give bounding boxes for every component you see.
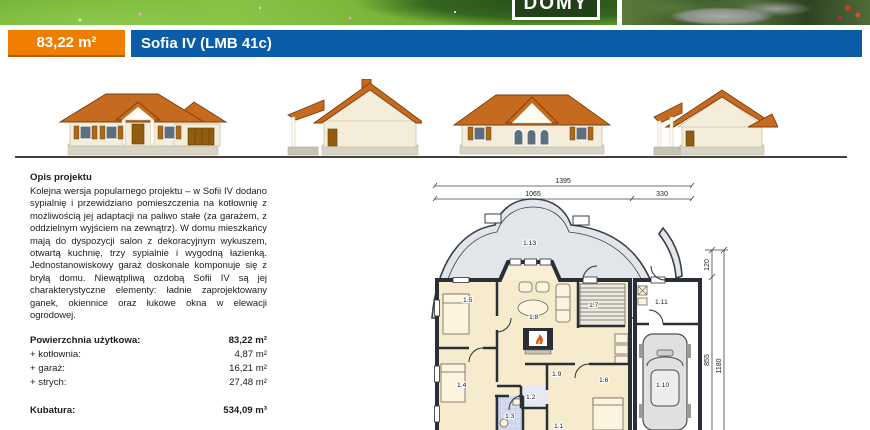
room-label-1-11: 1.11 — [655, 299, 668, 306]
elevation-garden-drawing — [452, 85, 612, 157]
room-label-1-5: 1.5 — [463, 297, 473, 304]
window-with-shutters — [468, 127, 491, 140]
room-label-1-8: 1.8 — [529, 314, 539, 321]
kubatura-label: Kubatura: — [30, 405, 75, 416]
elevation-front-drawing — [58, 86, 230, 157]
area-badge-value: 83,22 m² — [36, 34, 96, 51]
elevation-side-left-drawing — [286, 79, 422, 157]
kubatura-value: 534,09 m³ — [223, 405, 267, 416]
room-label-1-6: 1.6 — [599, 377, 609, 384]
room-label-1-1: 1.1 — [554, 423, 564, 430]
area-row-value: 16,21 m² — [229, 363, 267, 374]
area-row-label: + kotłownia: — [30, 349, 81, 360]
floor-plan-drawing: 1395 1065 330 1.13 — [425, 168, 745, 430]
stairs — [580, 284, 625, 326]
garage-door — [188, 128, 214, 145]
area-row-value: 83,22 m² — [229, 335, 267, 346]
fireplace — [523, 328, 553, 354]
table-row: + garaż: 16,21 m² — [30, 361, 267, 375]
area-row-label: + garaż: — [30, 363, 65, 374]
dim-main-width: 1065 — [525, 191, 541, 198]
project-title: Sofia IV (LMB 41c) — [141, 35, 272, 52]
arched-windows — [514, 130, 549, 146]
room-label-1-10: 1.10 — [656, 382, 669, 389]
depth-dimensions: 120 855 1180 — [704, 247, 728, 430]
width-dimensions: 1395 1065 330 — [433, 178, 694, 201]
window-with-shutters — [74, 126, 97, 139]
table-row: + kotłownia: 4,87 m² — [30, 347, 267, 361]
areas-table: Powierzchnia użytkowa: 83,22 m² + kotłow… — [30, 333, 267, 389]
area-row-value: 27,48 m² — [229, 377, 267, 388]
garden-pond-photo — [622, 0, 870, 25]
kubatura-row: Kubatura: 534,09 m³ — [30, 405, 267, 416]
project-description-column: Opis projektu Kolejna wersja popularnego… — [30, 172, 267, 430]
catalog-page: { "header": { "logo_text": "DOMY", "area… — [0, 0, 870, 430]
dim-garage-width: 330 — [656, 191, 668, 198]
dim-total-depth: 1180 — [716, 358, 723, 373]
table-row: + strych: 27,48 m² — [30, 375, 267, 389]
room-label-1-9: 1.9 — [552, 371, 562, 378]
area-badge: 83,22 m² — [8, 30, 125, 57]
room-label-1-2: 1.2 — [526, 394, 536, 401]
elevations-ground-line — [15, 156, 847, 158]
project-title-bar: Sofia IV (LMB 41c) — [131, 30, 862, 57]
area-row-label: + strych: — [30, 377, 67, 388]
room-label-1-4: 1.4 — [457, 382, 467, 389]
room-label-1-7: 1.7 — [589, 302, 599, 309]
area-row-label: Powierzchnia użytkowa: — [30, 335, 140, 346]
dim-porch-depth: 120 — [704, 259, 711, 271]
window-with-shutters — [158, 126, 181, 139]
window-with-shutters — [100, 126, 123, 139]
window-with-shutters — [570, 127, 593, 140]
publisher-logo: DOMY — [512, 0, 600, 20]
description-body: Kolejna wersja popularnego projektu – w … — [30, 185, 267, 321]
logo-text: DOMY — [524, 0, 589, 15]
dim-main-depth: 855 — [704, 354, 711, 366]
elevation-side-right-drawing — [652, 87, 778, 157]
header-photo-strip: DOMY — [0, 0, 870, 25]
dim-total-width: 1395 — [555, 178, 571, 185]
table-row: Powierzchnia użytkowa: 83,22 m² — [30, 333, 267, 347]
description-heading: Opis projektu — [30, 172, 267, 183]
area-row-value: 4,87 m² — [234, 349, 267, 360]
room-label-1-13: 1.13 — [523, 240, 536, 247]
room-label-1-3: 1.3 — [505, 413, 515, 420]
